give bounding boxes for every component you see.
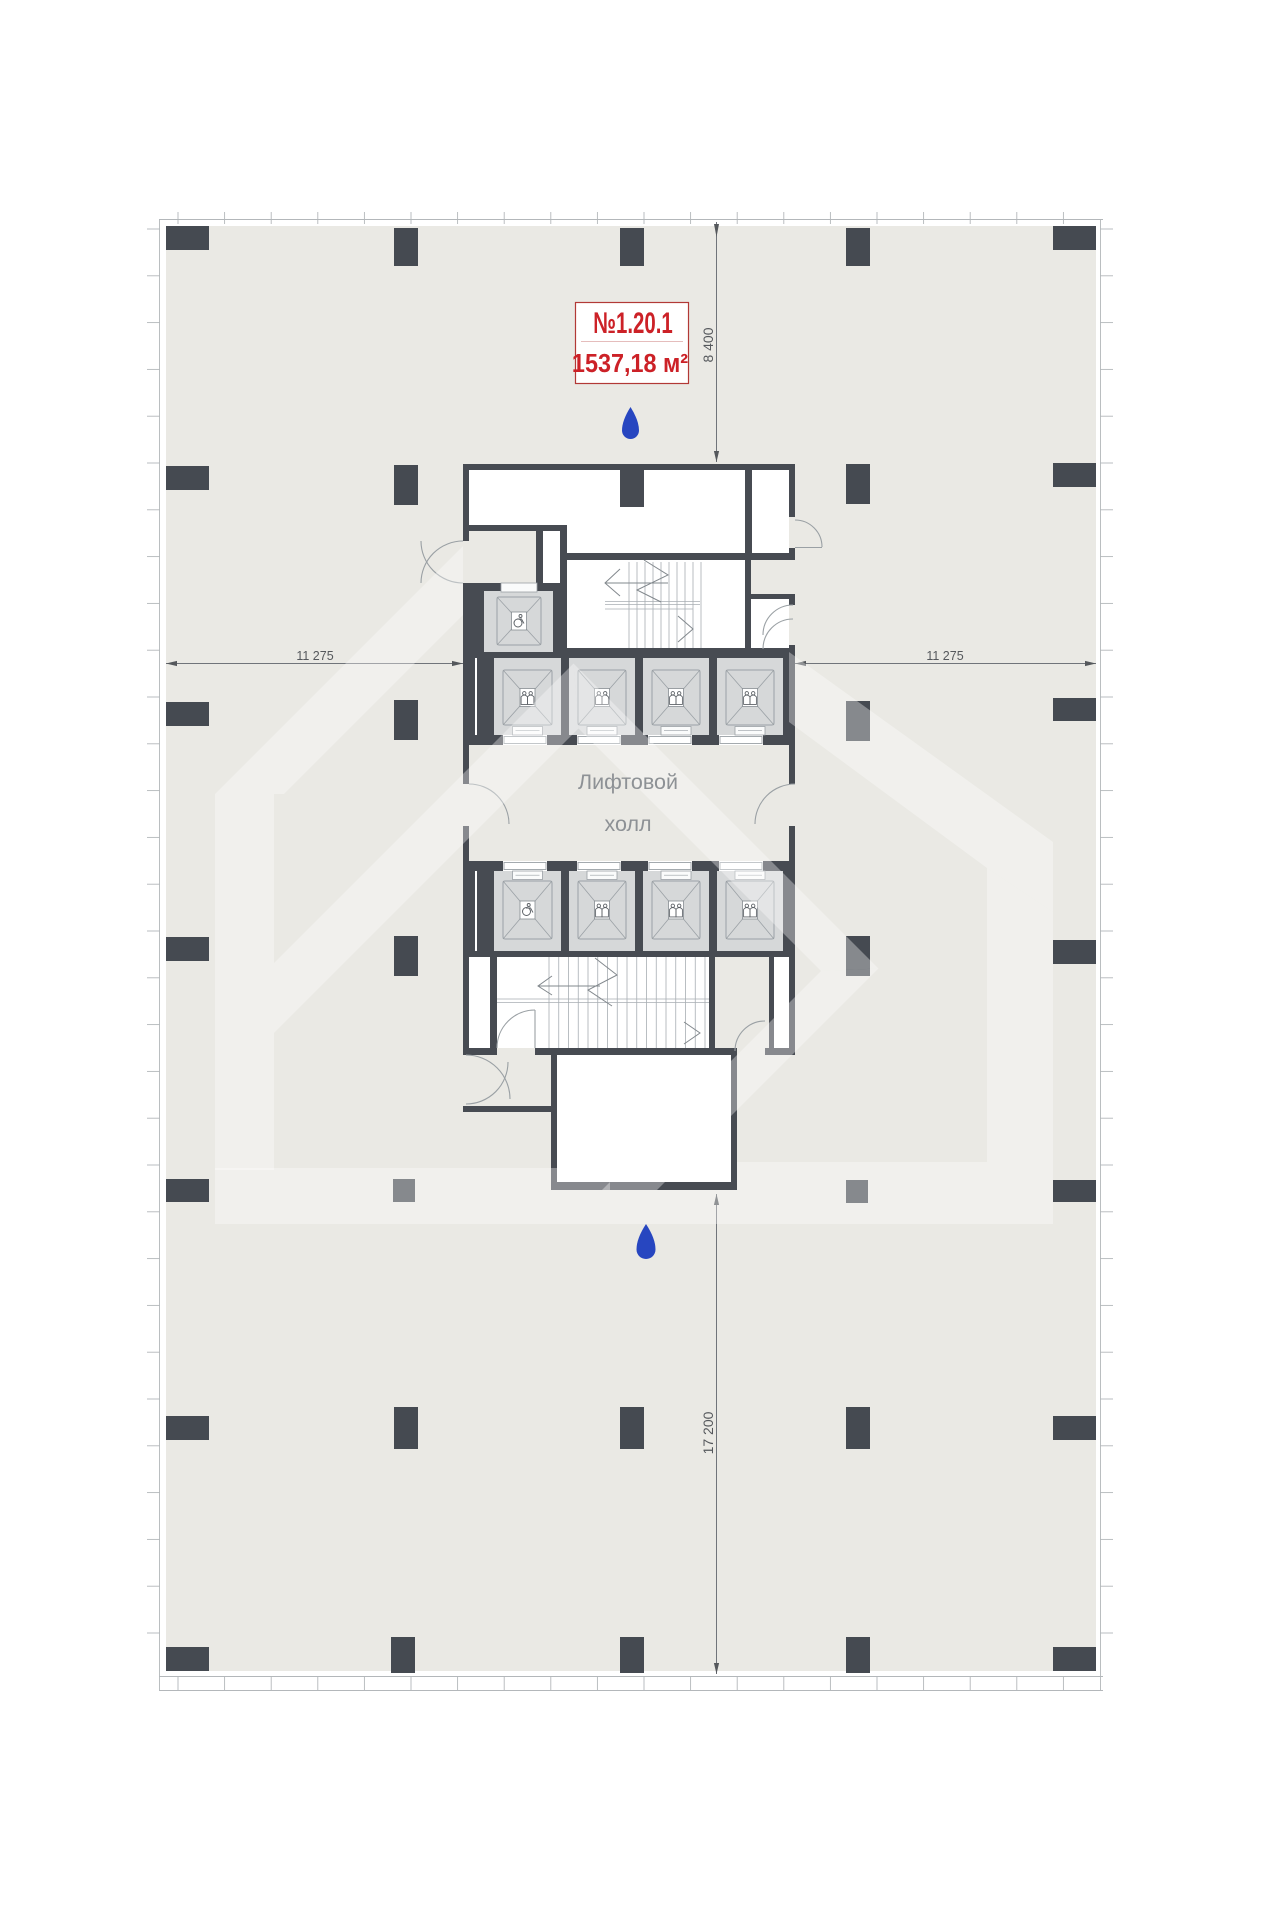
- svg-text:11 275: 11 275: [296, 649, 333, 663]
- svg-text:8 400: 8 400: [700, 327, 716, 362]
- svg-text:№1.20.1: №1.20.1: [593, 307, 672, 340]
- svg-text:17 200: 17 200: [700, 1411, 716, 1454]
- svg-text:11 275: 11 275: [926, 649, 963, 663]
- svg-text:холл: холл: [604, 812, 651, 836]
- svg-text:1537,18 м²: 1537,18 м²: [572, 350, 688, 378]
- svg-text:Лифтовой: Лифтовой: [578, 770, 678, 794]
